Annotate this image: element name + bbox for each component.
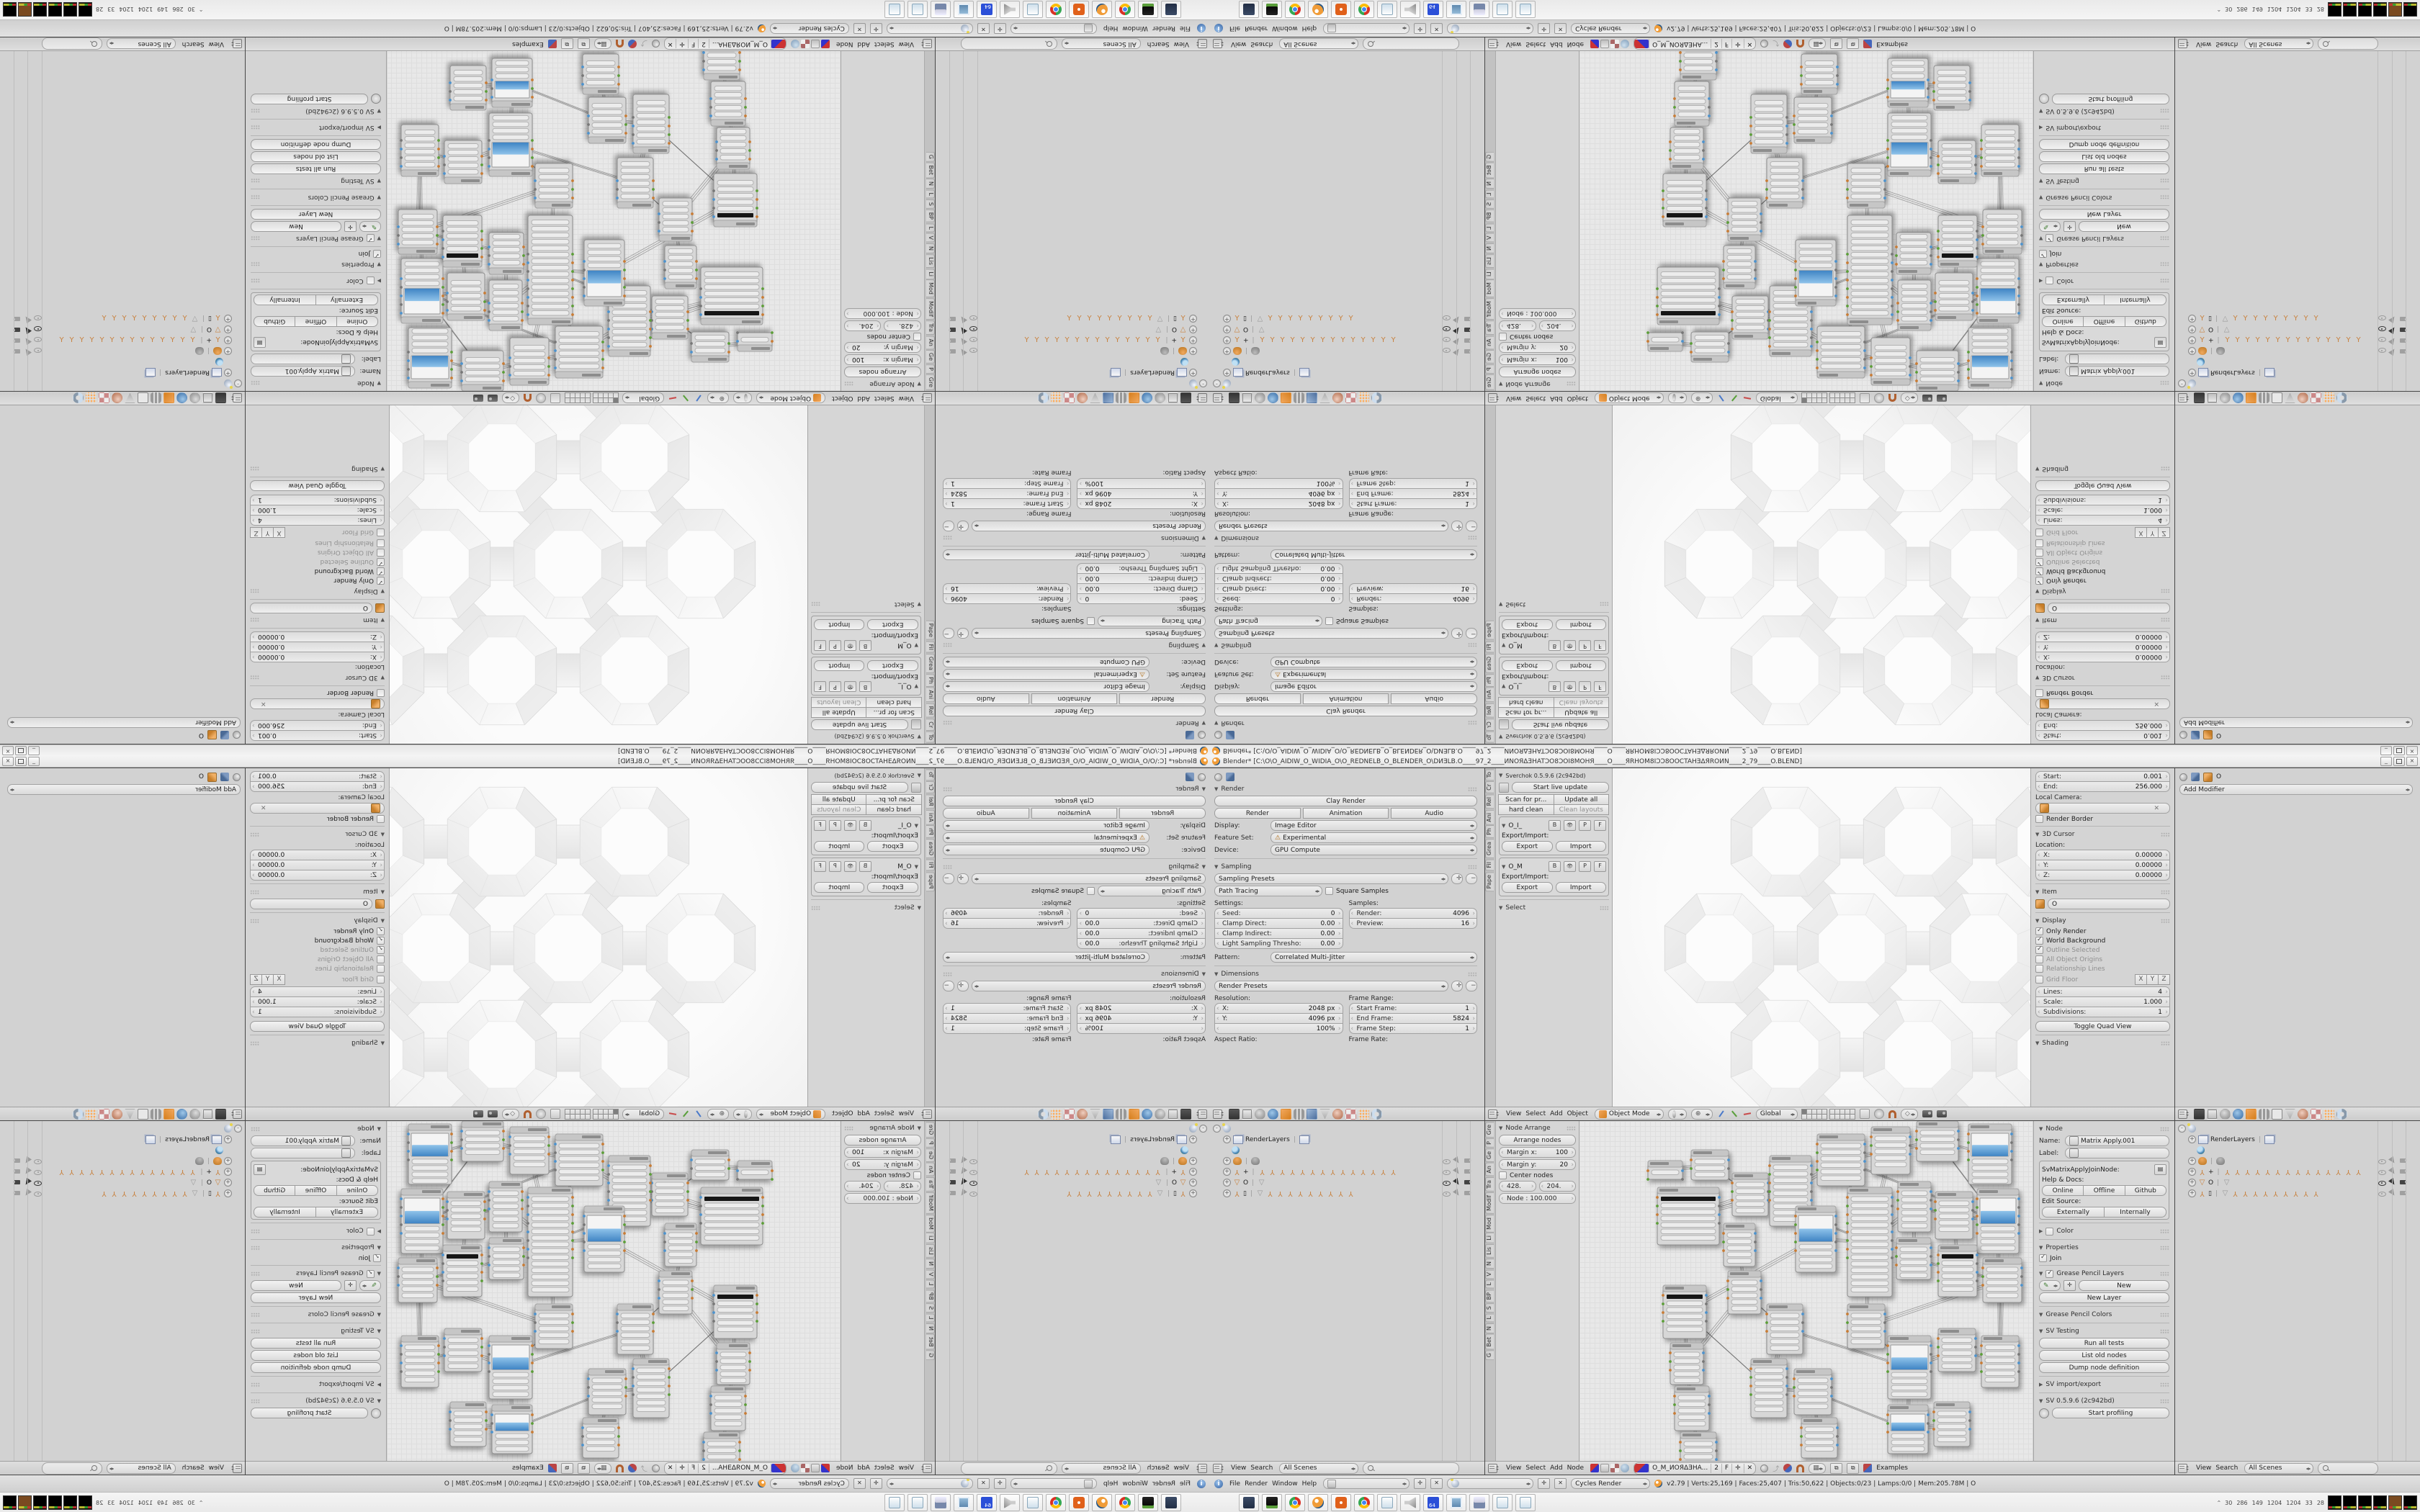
properties-tab-physics-icon[interactable] <box>73 393 84 404</box>
feature-set-dropdown[interactable]: ⚠Experimental <box>1270 669 1477 680</box>
sverchok-node-7[interactable] <box>460 1121 505 1161</box>
sverchok-node-0[interactable] <box>736 331 774 351</box>
properties-tab-physics-icon[interactable] <box>2336 393 2347 404</box>
window-titlebar[interactable]: Blender* [C:\O\O_AIDIW_O_WIDIA_O\O_REDNE… <box>1210 744 2420 756</box>
node-tool-tab-17-g[interactable]: G <box>1485 151 1494 161</box>
snap-magnet-icon[interactable] <box>616 40 624 48</box>
texture-tree-type-icon[interactable] <box>801 40 810 48</box>
display-field-0[interactable]: Lines:4 <box>250 515 385 526</box>
view3d-menu-object[interactable]: Object <box>830 395 855 402</box>
grid-axis-y[interactable]: Y <box>261 974 274 985</box>
tree-eye-toggle[interactable]: 👁 <box>844 640 856 651</box>
properties-tab-render-icon[interactable] <box>1229 393 1240 404</box>
sverchok-node-32[interactable] <box>1980 125 2020 176</box>
tree-eye-toggle[interactable]: 👁 <box>844 820 856 831</box>
node-canvas[interactable] <box>387 51 841 391</box>
render-action-animation[interactable]: Animation <box>1303 693 1389 704</box>
sverchok-node-19[interactable] <box>442 1245 483 1297</box>
sverchok-node-10[interactable] <box>1846 1187 1894 1297</box>
tray-expand-icon[interactable]: ⌃ <box>2216 6 2221 13</box>
sverchok-tool-2[interactable]: hard clean <box>866 697 923 708</box>
cursor-location-0[interactable]: X:0.00000 <box>2035 652 2170 662</box>
sverchok-node-29[interactable] <box>443 140 483 184</box>
taskbar-app-drive[interactable] <box>1262 1 1282 18</box>
manipulator-translate-icon[interactable] <box>694 1110 703 1118</box>
render-presets-dropdown[interactable]: Render Presets <box>972 981 1206 991</box>
scene-lock-icon[interactable] <box>1860 393 1870 403</box>
editor-type-button[interactable] <box>920 1464 932 1473</box>
render-action-audio[interactable]: Audio <box>1391 808 1477 819</box>
taskbar-app-notepad[interactable] <box>1377 1494 1397 1511</box>
taskbar-app-chrome[interactable] <box>1285 1494 1305 1511</box>
node-tool-tab-12-bp[interactable]: BP <box>926 210 935 222</box>
panel-sv-import-export[interactable]: SV import/export <box>251 122 381 132</box>
outliner-display-mode-dropdown[interactable]: All Scenes <box>2244 1463 2313 1474</box>
node-tool-tab-4-tra[interactable]: Tra <box>926 1177 935 1192</box>
display-check-all-object-origins[interactable] <box>2035 549 2043 557</box>
panel-grip-icon[interactable] <box>251 1382 260 1387</box>
panel-grip-icon[interactable] <box>251 1229 260 1234</box>
properties-tab-constraints-icon[interactable] <box>2259 393 2269 404</box>
display-check-relationship-lines[interactable] <box>2035 539 2043 547</box>
sverchok-tool-1[interactable]: Update all <box>811 794 867 805</box>
panel-grip-icon[interactable] <box>2160 195 2169 200</box>
start-live-update-button[interactable]: Start live update <box>811 719 908 730</box>
node-tool-tab-0-gre[interactable]: Gre <box>1485 1122 1494 1138</box>
sv-test-2[interactable]: Dump node definition <box>251 139 381 150</box>
panel-grip-icon[interactable] <box>2160 1313 2169 1318</box>
scene-lock-icon[interactable] <box>1860 1109 1870 1119</box>
tree-toggle-P[interactable]: P <box>1579 681 1591 692</box>
import-button[interactable]: Import <box>1556 660 1607 671</box>
properties-tab-data-icon[interactable] <box>1319 1109 1330 1120</box>
outliner-menu-view[interactable]: View <box>207 40 226 48</box>
sv-test-1[interactable]: List old nodes <box>251 151 381 162</box>
sverchok-node-28[interactable] <box>1886 113 1932 176</box>
frame-field-1[interactable]: End Frame:5824 <box>943 488 1072 499</box>
pattern-dropdown[interactable]: Correlated Multi-Jitter <box>943 952 1149 963</box>
panel-grip-icon[interactable] <box>1468 643 1477 648</box>
display-check-world-background[interactable] <box>377 937 385 945</box>
sverchok-tool-0[interactable]: Scan for pr... <box>1498 794 1554 805</box>
editor-type-button[interactable] <box>1213 1110 1224 1119</box>
panel-grip-icon[interactable] <box>844 1126 853 1131</box>
panel-shading[interactable]: Shading <box>250 464 385 474</box>
node-label-field[interactable] <box>2065 1148 2169 1158</box>
view3d-menu-object[interactable]: Object <box>830 1110 855 1117</box>
shader-tree-type-icon[interactable] <box>791 40 799 48</box>
sverchok-node-16[interactable] <box>1765 158 1804 208</box>
editor-type-button[interactable] <box>1196 40 1207 49</box>
texture-tree-type-icon[interactable] <box>1610 40 1619 48</box>
properties-tab-physics-icon[interactable] <box>1038 1109 1049 1120</box>
import-button[interactable]: Import <box>814 841 865 852</box>
frame-field-2[interactable]: Frame Step:1 <box>943 478 1072 489</box>
panel-grip-icon[interactable] <box>943 787 952 792</box>
layer-cell-16[interactable] <box>580 393 586 399</box>
view3d-tool-tab-1-cr[interactable]: Cr <box>1485 719 1494 731</box>
import-button[interactable]: Import <box>814 619 865 630</box>
resolution-field-2[interactable]: 100% <box>1077 1023 1206 1034</box>
sverchok-node-21[interactable] <box>1662 1285 1708 1338</box>
render-engine-selector[interactable]: Cycles Render <box>770 23 849 34</box>
screen-layout-selector[interactable] <box>1010 23 1097 34</box>
docs-github[interactable]: Github <box>2125 316 2166 327</box>
item-name-field[interactable]: O <box>2048 899 2170 909</box>
taskbar-app-spiral[interactable] <box>1069 1 1089 18</box>
taskbar-app-image-viewer[interactable] <box>1446 1 1466 18</box>
panel-grip-icon[interactable] <box>2161 1041 2170 1046</box>
expander-icon[interactable]: + <box>2188 347 2196 355</box>
view3d-menu-object[interactable]: Object <box>1565 395 1590 402</box>
taskbar-app-speaker[interactable] <box>1400 1 1420 18</box>
clip-field-0[interactable]: Start:0.001 <box>2035 771 2170 782</box>
margin-y-field[interactable]: Margin y:20 <box>1499 342 1576 353</box>
sverchok-node-22[interactable] <box>1669 1343 1705 1385</box>
properties-tab-modifiers-icon[interactable] <box>2272 1109 2282 1120</box>
panel-sverchok[interactable]: Sverchok 0.5.9.6 (2c942bd) <box>1499 770 1609 780</box>
integrator-dropdown[interactable]: Path Tracing <box>1098 886 1206 896</box>
layers-widget[interactable] <box>1802 393 1855 403</box>
pivot-dropdown[interactable]: ⊕ <box>707 1109 729 1120</box>
properties-tab-modifiers-icon[interactable] <box>1103 1109 1113 1120</box>
panel-grip-icon[interactable] <box>943 643 952 648</box>
tree-toggle-F[interactable]: F <box>1594 820 1606 831</box>
integrator-dropdown[interactable]: Path Tracing <box>1098 616 1206 626</box>
taskbar-app-system-monitor[interactable] <box>1161 1494 1181 1511</box>
panel-select[interactable]: Select <box>1499 599 1609 609</box>
properties-tab-render-icon[interactable] <box>1180 393 1191 404</box>
outliner-menu-view[interactable]: View <box>1229 1464 1248 1472</box>
render-border-checkbox[interactable] <box>2035 689 2043 697</box>
taskbar-app-drive[interactable] <box>1262 1494 1282 1511</box>
gp-new-button[interactable]: New <box>2079 1280 2169 1291</box>
feature-set-dropdown[interactable]: ⚠Experimental <box>943 669 1149 680</box>
sverchok-node-12[interactable] <box>446 273 486 320</box>
sverchok-node-16[interactable] <box>1765 1304 1804 1354</box>
sampling-setting-1[interactable]: Clamp Direct:0.00 <box>1077 583 1206 594</box>
taskbar-app-system-monitor[interactable] <box>1239 1 1259 18</box>
node-scale-field[interactable]: Node : 100.000 <box>1499 308 1576 319</box>
examples-menu[interactable]: Examples <box>1876 40 1908 48</box>
tree-eye-toggle[interactable]: 👁 <box>1564 640 1576 651</box>
render-action-audio[interactable]: Audio <box>943 808 1029 819</box>
samples-field-0[interactable]: Render:4096 <box>1349 593 1478 604</box>
export-button[interactable]: Export <box>1502 882 1553 893</box>
panel-node-arrange[interactable]: Node Arrange <box>844 379 921 389</box>
paste-nodes-icon[interactable]: ⧉ <box>1847 1463 1859 1474</box>
pattern-dropdown[interactable]: Correlated Multi-Jitter <box>1270 952 1477 963</box>
sverchok-node-28[interactable] <box>488 113 534 176</box>
grid-axis-y[interactable]: Y <box>2146 974 2159 985</box>
node-tool-tab-3-an[interactable]: An <box>1485 336 1494 349</box>
device-dropdown[interactable]: GPU Compute <box>943 657 1149 667</box>
sverchok-node-18[interactable] <box>1895 1238 1932 1279</box>
add-modifier-dropdown[interactable]: Add Modifier <box>7 784 241 795</box>
scene-add-button[interactable]: ✛ <box>870 1478 882 1489</box>
editor-type-button[interactable] <box>1488 1464 1500 1473</box>
node-tool-tab-0-gre[interactable]: Gre <box>1485 374 1494 390</box>
node-tool-tab-10-v[interactable]: V <box>926 1269 935 1279</box>
properties-tab-scene-icon[interactable] <box>2220 1109 2231 1120</box>
center-nodes-checkbox[interactable] <box>913 1171 921 1179</box>
opengl-render-anim-icon[interactable] <box>473 1110 483 1117</box>
texture-tree-type-icon[interactable] <box>1610 1464 1619 1472</box>
panel-grip-icon[interactable] <box>250 675 259 680</box>
taskbar-app-notepad2[interactable] <box>1492 1 1512 18</box>
add-modifier-dropdown[interactable]: Add Modifier <box>2179 784 2413 795</box>
info-menu-file[interactable]: File <box>1227 1480 1242 1488</box>
panel-shading[interactable]: Shading <box>2035 464 2170 474</box>
preset-add-button[interactable]: ✛ <box>1451 628 1463 639</box>
view3d-tool-tab-6-fil[interactable]: Fil <box>1485 859 1494 870</box>
tree-toggle-P[interactable]: P <box>1579 861 1591 872</box>
properties-tab-material-icon[interactable] <box>2298 393 2308 404</box>
sverchok-node-5[interactable] <box>1816 1134 1866 1186</box>
pin-icon[interactable] <box>1760 40 1768 48</box>
expander-icon[interactable]: + <box>1223 1157 1231 1165</box>
node-menu-node[interactable]: Node <box>1565 1464 1587 1472</box>
tree-name[interactable]: O_M_ИОЯΔƎHA... <box>1649 1464 1711 1473</box>
panel-3d-cursor[interactable]: 3D Cursor <box>250 672 385 683</box>
view3d-tool-tab-6-fil[interactable]: Fil <box>926 641 935 652</box>
layers-widget[interactable] <box>1802 1109 1855 1119</box>
sverchok-node-28[interactable] <box>488 1336 534 1399</box>
view3d-tool-tab-2-rel[interactable]: Rel <box>926 703 935 717</box>
manipulator-rotate-icon[interactable] <box>681 394 690 402</box>
new-layer-button[interactable]: New Layer <box>2039 1292 2169 1303</box>
taskbar-app-notepad[interactable] <box>1023 1 1043 18</box>
tree-eye-toggle[interactable]: 👁 <box>1564 820 1576 831</box>
node-canvas[interactable] <box>387 1121 841 1461</box>
sampling-setting-3[interactable]: Light Sampling Thresho:0.00 <box>1077 563 1206 574</box>
panel-node[interactable]: Node <box>251 378 381 388</box>
display-dropdown[interactable]: Image Editor <box>943 681 1149 692</box>
info-menu-file[interactable]: File <box>1178 1480 1193 1488</box>
panel-sv-import-export[interactable]: SV import/export <box>2039 1380 2169 1390</box>
layer-cell-13[interactable] <box>570 398 575 404</box>
sverchok-node-10[interactable] <box>1846 215 1894 325</box>
layout-add-button[interactable]: ✛ <box>994 1478 1006 1489</box>
info-menu-window[interactable]: Window <box>1120 25 1150 32</box>
samples-field-0[interactable]: Render:4096 <box>943 908 1072 919</box>
clip-field-1[interactable]: End:256.000 <box>250 720 385 731</box>
panel-grip-icon[interactable] <box>251 262 260 267</box>
clay-render-button[interactable]: Clay Render <box>1214 796 1477 806</box>
panel-sv-testing[interactable]: SV Testing <box>2039 176 2169 186</box>
panel-display[interactable]: Display <box>2035 916 2170 926</box>
panel-render[interactable]: Render <box>943 718 1206 728</box>
properties-tab-data-icon[interactable] <box>2285 1109 2295 1120</box>
display-check-outline-selected[interactable] <box>377 558 385 566</box>
copy-nodes-icon[interactable]: ⧉ <box>578 1463 590 1474</box>
docs-github[interactable]: Github <box>2125 1185 2166 1196</box>
grid-floor-checkbox[interactable] <box>377 976 385 984</box>
viewport-shading-dropdown[interactable] <box>733 1109 752 1120</box>
tree-toggle-B[interactable]: B <box>1549 640 1561 651</box>
edit-source-internally[interactable]: Internally <box>254 1207 316 1218</box>
import-button[interactable]: Import <box>1556 882 1607 893</box>
square-samples-checkbox[interactable] <box>1087 887 1095 895</box>
layer-cell-1[interactable] <box>608 398 614 404</box>
node-label-field[interactable] <box>2065 354 2169 364</box>
expander-icon[interactable]: + <box>224 336 232 344</box>
properties-tab-scene-icon[interactable] <box>1255 393 1265 404</box>
tree-name[interactable]: O_M_ИОЯΔƎHA... <box>709 1464 771 1473</box>
panel-sv-version[interactable]: SV 0.5.9.6 (2c942bd) <box>2039 1396 2169 1406</box>
panel-render[interactable]: Render <box>943 784 1206 794</box>
sampling-presets-dropdown[interactable]: Sampling Presets <box>1214 628 1448 639</box>
properties-tab-particles-icon[interactable] <box>86 1109 97 1120</box>
panel-color[interactable]: Color <box>2039 1226 2169 1236</box>
expander-icon[interactable]: - <box>2178 1125 2186 1133</box>
sverchok-node-26[interactable] <box>1793 97 1833 143</box>
node-tool-tab-13-s[interactable]: S <box>926 199 935 209</box>
close-button[interactable]: × <box>2 746 14 755</box>
sverchok-tool-3[interactable]: Clean layouts <box>811 804 867 815</box>
taskbar-app-chrome2[interactable] <box>1046 1494 1066 1511</box>
sverchok-node-31[interactable] <box>1932 1402 1971 1446</box>
outliner-search-field[interactable] <box>2318 38 2378 50</box>
sampling-setting-1[interactable]: Clamp Direct:0.00 <box>1214 918 1343 929</box>
taskbar-app-chrome2[interactable] <box>1354 1494 1374 1511</box>
frame-field-0[interactable]: Start Frame:1 <box>943 1003 1072 1014</box>
panel-grip-icon[interactable] <box>2160 1246 2169 1251</box>
display-check-relationship-lines[interactable] <box>377 539 385 547</box>
node-menu-select[interactable]: Select <box>1523 1464 1548 1472</box>
sverchok-node-23[interactable] <box>1673 1386 1711 1431</box>
tree-name[interactable]: O_M <box>1508 863 1522 870</box>
display-dropdown[interactable]: Image Editor <box>1270 681 1477 692</box>
pin-icon[interactable] <box>1214 773 1222 781</box>
node-tool-tab-2-ge[interactable]: Ge <box>1485 1148 1494 1162</box>
editor-type-button[interactable] <box>1488 1110 1500 1119</box>
node-tool-tab-0-gre[interactable]: Gre <box>926 1122 935 1138</box>
paste-nodes-icon[interactable]: ⧉ <box>561 1463 573 1474</box>
join-checkbox[interactable] <box>373 1254 381 1262</box>
sverchok-node-25[interactable] <box>1749 94 1788 153</box>
tree-toggle-P[interactable]: P <box>829 640 841 651</box>
frame-field-2[interactable]: Frame Step:1 <box>1349 478 1478 489</box>
orientation-dropdown[interactable]: Global <box>622 1109 664 1120</box>
copy-nodes-icon[interactable]: ⧉ <box>1830 1463 1842 1474</box>
render-engine-selector[interactable]: Cycles Render <box>770 1478 849 1489</box>
scene-add-button[interactable]: ✛ <box>1538 1478 1550 1489</box>
node-tool-tab-7-li[interactable]: Li <box>926 1233 935 1243</box>
margin-x-field[interactable]: Margin x:100 <box>844 1147 921 1158</box>
expander-icon[interactable]: + <box>1189 336 1197 344</box>
sverchok-node-19[interactable] <box>442 215 483 267</box>
device-dropdown[interactable]: GPU Compute <box>943 845 1149 855</box>
viewport-shading-dropdown[interactable] <box>1668 1109 1687 1120</box>
docs-github[interactable]: Github <box>254 316 295 327</box>
sverchok-node-24[interactable] <box>702 51 741 80</box>
display-check-world-background[interactable] <box>377 567 385 575</box>
sverchok-node-0[interactable] <box>736 1161 774 1181</box>
window-titlebar[interactable]: Blender* [C:\O\O_AIDIW_O_WIDIA_O\O_REDNE… <box>0 756 1210 768</box>
view3d-tool-tab-7-pape[interactable]: Pape <box>926 872 935 891</box>
clip-field-1[interactable]: End:256.000 <box>2035 781 2170 792</box>
render-border-checkbox[interactable] <box>377 689 385 697</box>
view3d-tool-tab-1-cr[interactable]: Cr <box>926 781 935 793</box>
info-editor-icon[interactable]: i <box>1214 24 1223 33</box>
render-action-audio[interactable]: Audio <box>1391 693 1477 704</box>
properties-tab-data-icon[interactable] <box>1319 393 1330 404</box>
manipulator-rotate-icon[interactable] <box>1730 394 1739 402</box>
tree-add-button[interactable]: ✛ <box>676 1464 689 1473</box>
node-menu-node[interactable]: Node <box>834 1464 856 1472</box>
expander-icon[interactable]: + <box>1189 1179 1197 1187</box>
view3d-tool-tab-7-pape[interactable]: Pape <box>1485 621 1494 640</box>
properties-tab-scene-icon[interactable] <box>189 1109 200 1120</box>
node-tool-tab-6-mod[interactable]: Mod <box>926 1215 935 1233</box>
properties-tab-particles-icon[interactable] <box>2323 393 2334 404</box>
sampling-setting-1[interactable]: Clamp Direct:0.00 <box>1214 583 1343 594</box>
arrange-y-field[interactable]: 204. <box>1539 1181 1577 1192</box>
sverchok-node-27[interactable] <box>581 54 620 94</box>
sverchok-node-32[interactable] <box>400 1336 440 1387</box>
layout-delete-button[interactable]: ✕ <box>1430 1478 1443 1489</box>
display-check-world-background[interactable] <box>2035 567 2043 575</box>
sverchok-node-13[interactable] <box>1976 258 2020 323</box>
sverchok-node-0[interactable] <box>1646 331 1684 351</box>
preset-add-button[interactable]: ✛ <box>957 628 969 639</box>
panel-grip-icon[interactable] <box>1567 1126 1576 1131</box>
info-editor-icon[interactable]: i <box>1197 1480 1206 1488</box>
view3d-menu-select[interactable]: Select <box>872 395 897 402</box>
properties-tab-modifiers-icon[interactable] <box>1307 1109 1317 1120</box>
node-doc-icon[interactable]: ▤ <box>254 337 266 348</box>
pin-icon[interactable] <box>652 1464 660 1472</box>
panel-sv-version[interactable]: SV 0.5.9.6 (2c942bd) <box>251 106 381 116</box>
edit-source-internally[interactable]: Internally <box>2104 1207 2166 1218</box>
info-menu-file[interactable]: File <box>1227 25 1242 32</box>
cursor-location-2[interactable]: Z:0.00000 <box>2035 870 2170 881</box>
node-name-field[interactable]: Matrix Apply.001 <box>251 1135 355 1146</box>
render-engine-selector[interactable]: Cycles Render <box>1571 1478 1650 1489</box>
tree-name[interactable]: O_M_ИОЯΔƎHA... <box>709 40 771 49</box>
sverchok-node-31[interactable] <box>1932 66 1971 110</box>
pin-icon[interactable] <box>1214 732 1222 739</box>
layout-delete-button[interactable]: ✕ <box>977 23 990 34</box>
properties-tab-modifiers-icon[interactable] <box>138 393 148 404</box>
pin-icon[interactable] <box>1760 1464 1768 1472</box>
node-tool-tab-11-l[interactable]: L <box>1485 1279 1494 1288</box>
properties-tab-data-icon[interactable] <box>2285 393 2295 404</box>
node-tool-tab-7-li[interactable]: Li <box>1485 269 1494 279</box>
sverchok-node-9[interactable] <box>583 1206 626 1272</box>
sverchok-node-21[interactable] <box>712 174 758 227</box>
properties-tab-world-icon[interactable] <box>176 1109 187 1120</box>
layer-cell-17[interactable] <box>575 1114 581 1120</box>
tree-toggle-F[interactable]: F <box>814 820 826 831</box>
editor-type-button[interactable] <box>1213 394 1224 403</box>
tray-expand-icon[interactable]: ⌃ <box>199 1500 204 1506</box>
sverchok-node-2[interactable] <box>1656 267 1721 325</box>
outliner-display-mode-dropdown[interactable]: All Scenes <box>1062 39 1141 50</box>
sverchok-node-8[interactable] <box>407 328 453 388</box>
preset-remove-button[interactable]: − <box>1466 981 1477 991</box>
panel-dimensions[interactable]: Dimensions <box>943 533 1206 543</box>
view3d-menu-view[interactable]: View <box>1504 1110 1523 1117</box>
snap-mode-dropdown[interactable]: ▦ <box>594 1463 611 1474</box>
expander-icon[interactable]: + <box>1223 1168 1231 1176</box>
render-presets-dropdown[interactable]: Render Presets <box>1214 521 1448 531</box>
grid-axis-z[interactable]: Z <box>250 527 262 538</box>
properties-tab-material-icon[interactable] <box>112 1109 122 1120</box>
gp-new-button[interactable]: New <box>251 1280 341 1291</box>
outliner-menu-view[interactable]: View <box>2194 40 2213 48</box>
